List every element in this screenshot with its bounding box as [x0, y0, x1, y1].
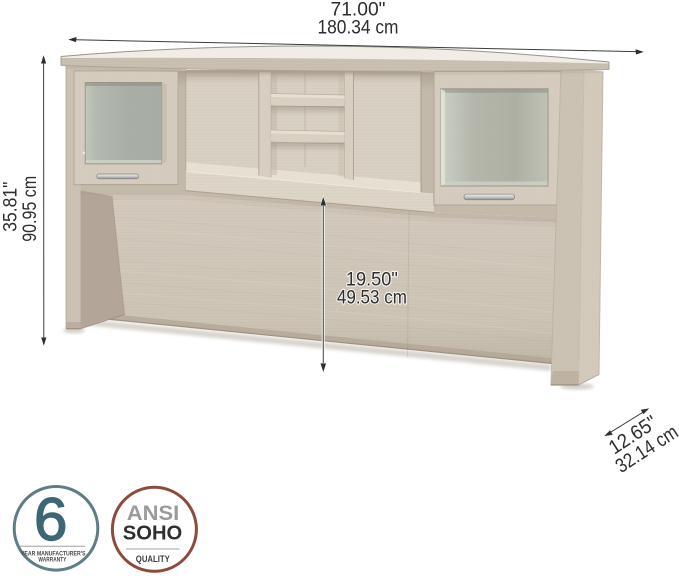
svg-text:WARRANTY: WARRANTY [38, 557, 66, 564]
svg-text:QUALITY: QUALITY [136, 554, 171, 565]
svg-text:SOHO: SOHO [123, 523, 183, 545]
svg-text:ANSI: ANSI [127, 501, 180, 525]
svg-text:49.53 cm: 49.53 cm [337, 287, 407, 309]
svg-text:90.95 cm: 90.95 cm [19, 176, 41, 242]
svg-text:6: 6 [34, 486, 67, 553]
svg-text:180.34 cm: 180.34 cm [318, 17, 399, 39]
